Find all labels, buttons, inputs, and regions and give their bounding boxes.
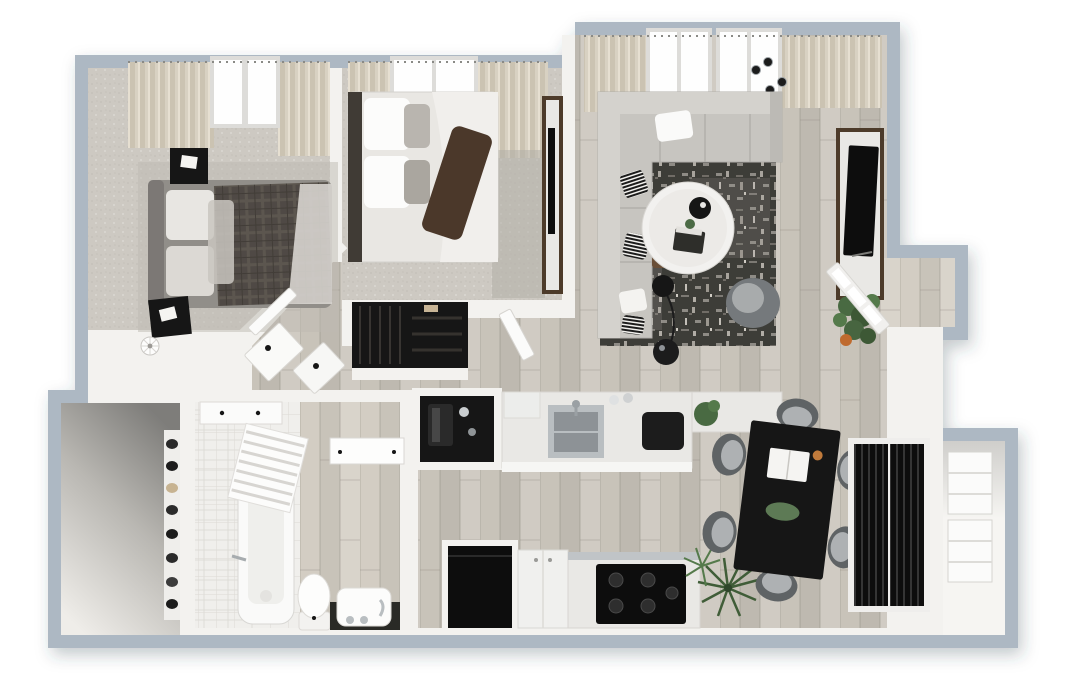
walk-in-closet (164, 430, 180, 620)
apartment (48, 22, 1018, 648)
runner-rug (492, 150, 545, 298)
closet-wall-lip (352, 368, 468, 380)
wardrobe-closet (352, 302, 468, 380)
nightstand-book (180, 155, 198, 169)
white-pillow (654, 110, 694, 143)
pillow (364, 156, 410, 208)
soap-bottle (609, 395, 619, 405)
pillow (166, 190, 214, 240)
gray-pillow (404, 104, 430, 148)
headboard (348, 92, 362, 262)
louvered-door[interactable] (890, 444, 924, 606)
walk-in-closet-floor (61, 403, 180, 635)
sink (548, 400, 604, 458)
gray-pillow (404, 160, 430, 204)
sofa-arm (770, 92, 782, 162)
black-tray (689, 197, 711, 219)
range-cooktop (568, 552, 700, 628)
louvered-door[interactable] (854, 444, 888, 606)
pillow (364, 98, 410, 150)
white-pillow (618, 288, 647, 314)
curtain-right (782, 36, 882, 108)
mug (468, 428, 476, 436)
shoe-shelf (164, 430, 180, 620)
toilet (298, 574, 330, 630)
tv (548, 128, 555, 234)
microwave (504, 392, 540, 418)
curtain-left (128, 62, 214, 148)
bedroom-1 (128, 56, 338, 355)
living-room (584, 28, 884, 365)
soap-bottle (623, 393, 633, 403)
dining-table (733, 420, 841, 580)
refrigerator (442, 540, 518, 628)
bed (148, 180, 332, 308)
curtain-right (278, 62, 330, 156)
floor-plan-stage (0, 0, 1072, 697)
accent-pillow (208, 200, 234, 284)
wall-cabinet (200, 402, 282, 424)
tv-console (542, 96, 563, 294)
floor-fan (141, 337, 159, 355)
striped-pillow (621, 315, 645, 336)
vanity-sink (330, 588, 400, 630)
floor-plan-render (0, 0, 1072, 697)
round-marble-coffee-table (642, 182, 734, 274)
toaster (642, 412, 684, 450)
tv (843, 145, 879, 256)
window (210, 56, 280, 128)
headboard (148, 180, 164, 308)
coffee-machine (428, 404, 453, 446)
small-plant (685, 219, 695, 229)
drain (260, 590, 272, 602)
shelving-unit (948, 520, 992, 582)
pot (840, 334, 852, 346)
mug (459, 407, 469, 417)
shelving-unit (948, 452, 992, 514)
base-cabinet (518, 550, 568, 628)
bed (348, 92, 498, 262)
round-side-table (653, 339, 679, 365)
pillow (166, 246, 214, 296)
swivel-accent-chair (726, 278, 780, 328)
coffee-bar-nook (412, 388, 502, 470)
